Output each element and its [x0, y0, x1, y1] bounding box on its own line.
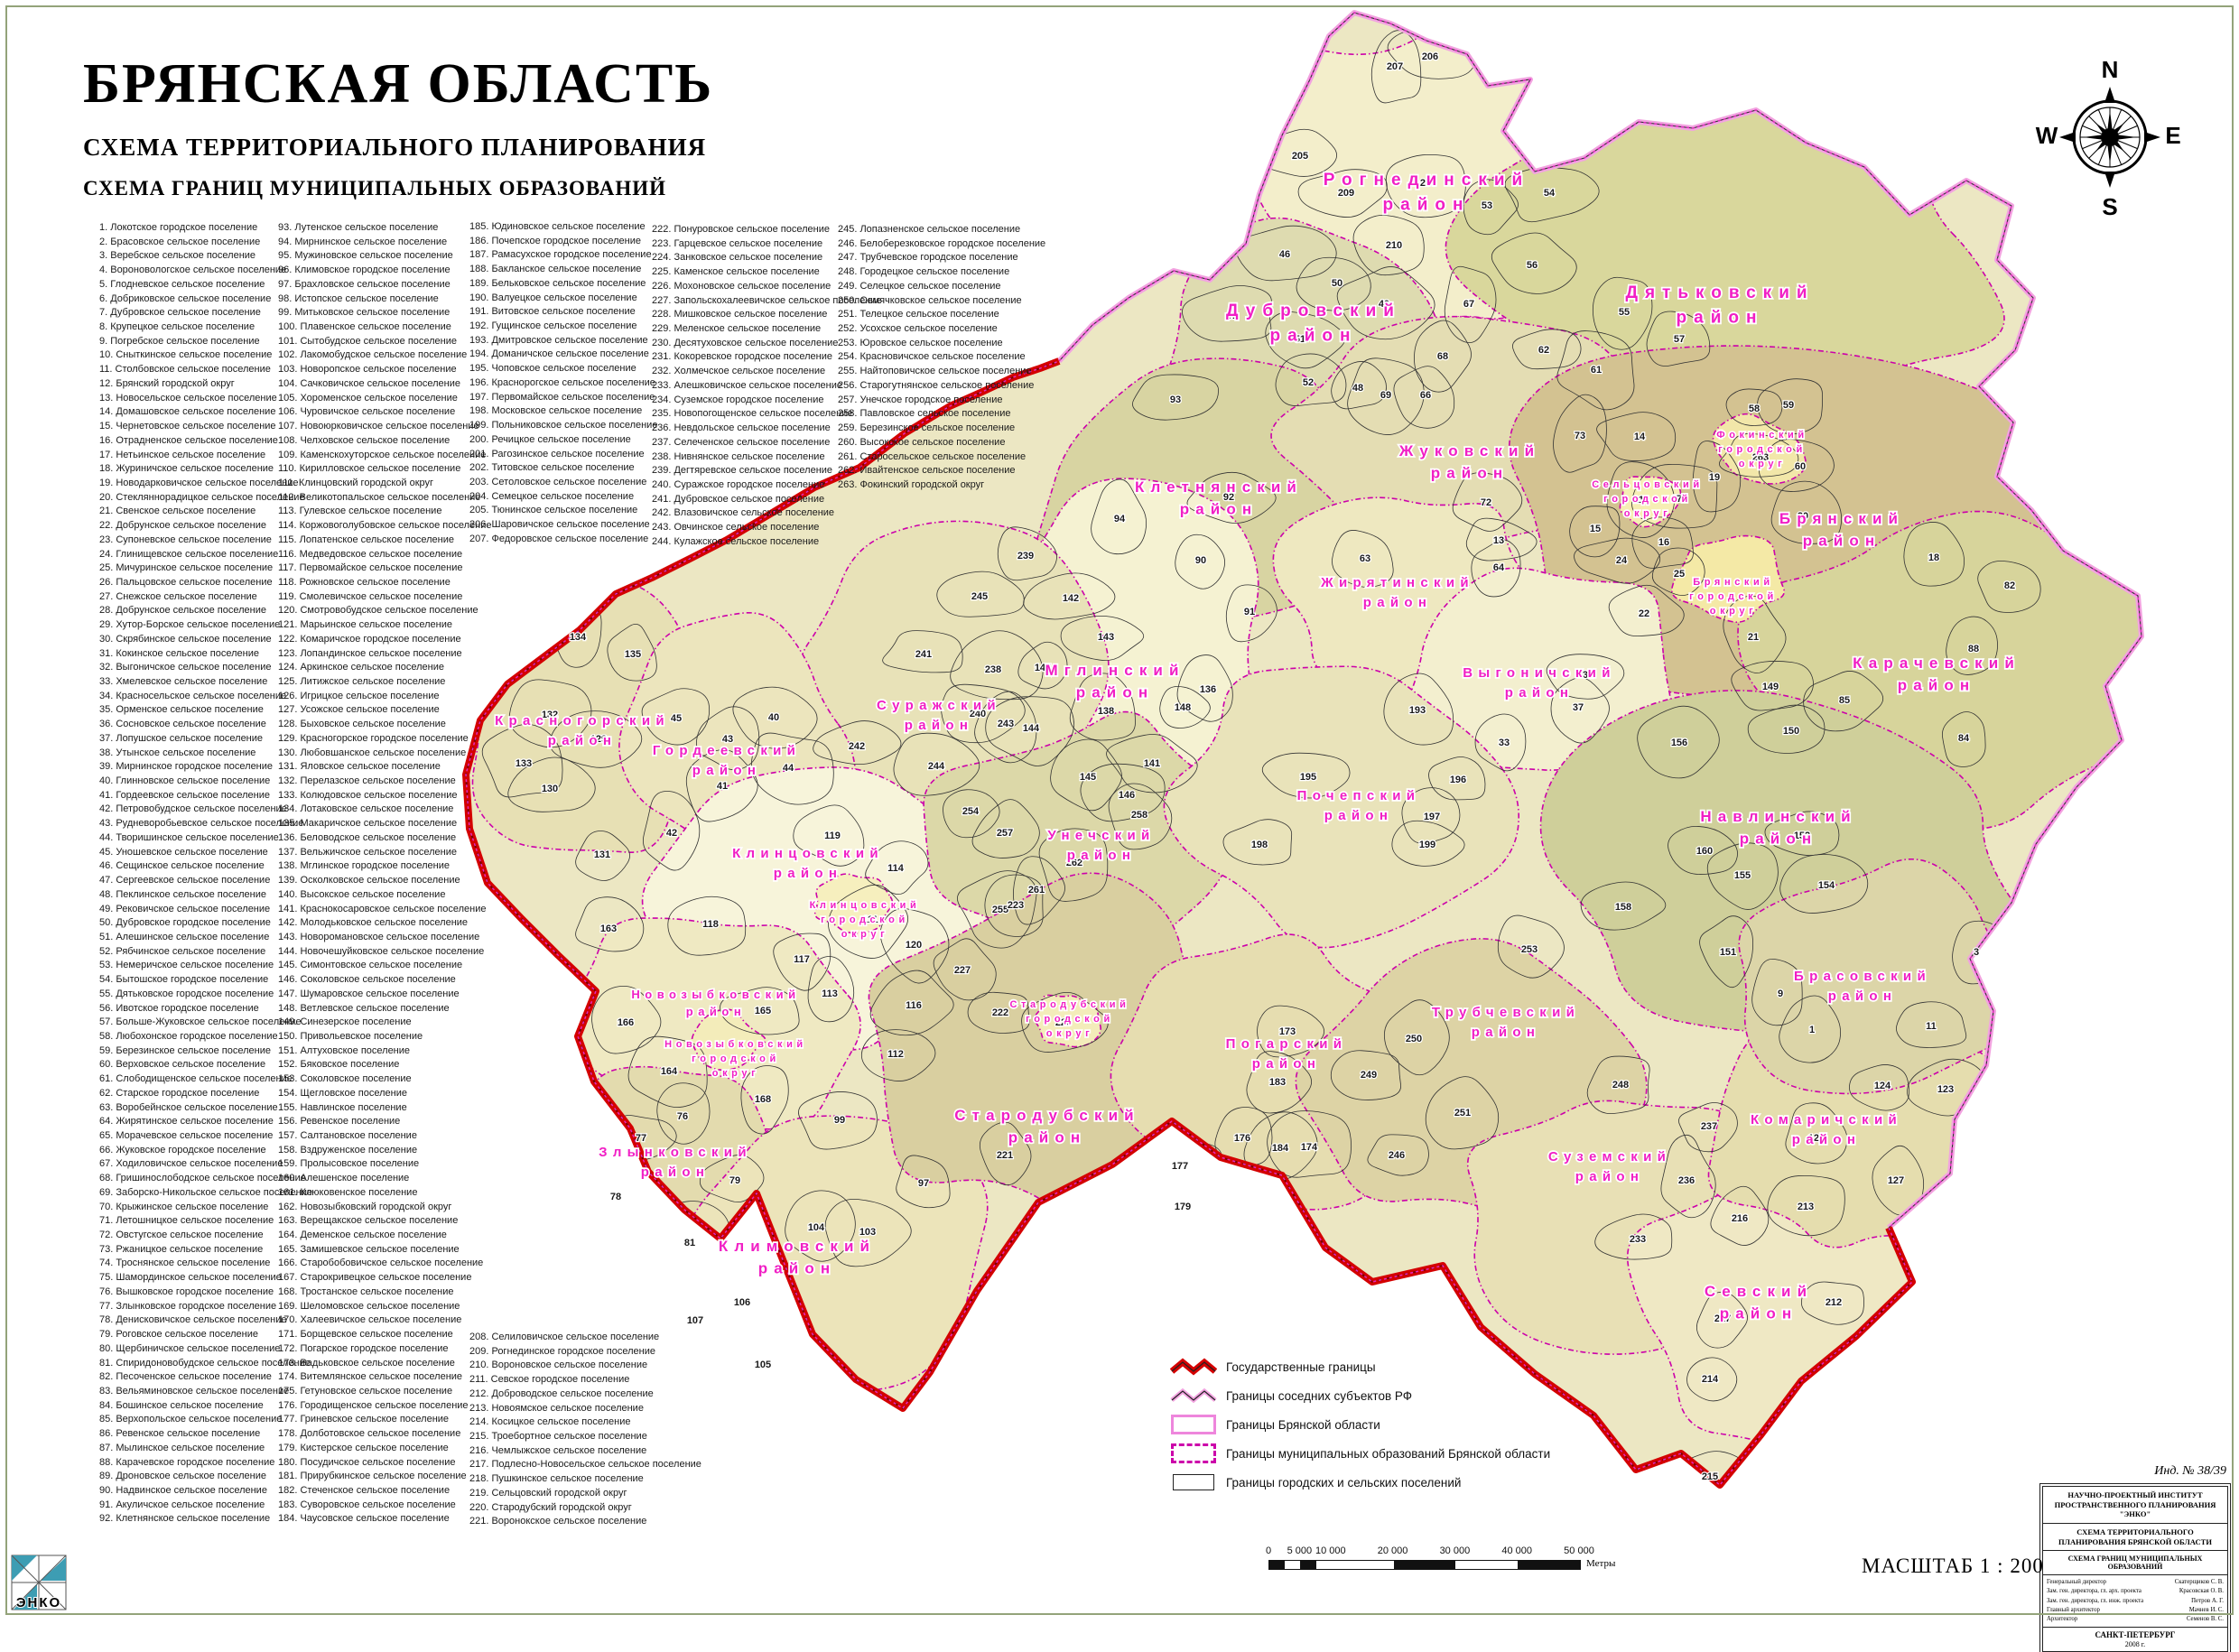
settlement-number: 22 — [1639, 608, 1649, 619]
legend-item: 210. Вороновское сельское поселение — [469, 1359, 701, 1373]
legend-item: 116. Медведовское сельское поселение — [278, 548, 492, 562]
legend-item: 168. Тростанское сельское поселение — [278, 1285, 492, 1300]
legend-item: 243. Овчинское сельское поселение — [652, 521, 882, 535]
title-block-staff-row: Главный архитекторМачнев И. С. — [2047, 1606, 2224, 1615]
legend-item: 98. Истопское сельское поселение — [278, 292, 492, 307]
settlement-number: 67 — [1463, 299, 1474, 310]
neighbor-border-symbol — [1170, 1385, 1217, 1406]
legend-item: 190. Валуецкое сельское поселение — [469, 292, 657, 306]
legend-item: 250. Семячковское сельское поселение — [838, 294, 1045, 309]
settlement-number: 205 — [1292, 151, 1308, 162]
legend-item: 113. Гулевское сельское поселение — [278, 505, 492, 519]
legend-item: 184. Чаусовское сельское поселение — [278, 1512, 492, 1527]
svg-text:S: S — [2102, 193, 2117, 220]
legend-item: 197. Первомайское сельское поселение — [469, 391, 657, 405]
legend-item: 189. Бельковское сельское поселение — [469, 277, 657, 292]
legend-item: 99. Митьковское сельское поселение — [278, 306, 492, 320]
settlement-number: 69 — [1380, 390, 1391, 401]
settlement-number: 58 — [1749, 404, 1760, 414]
legend-item: 130. Любовшанское сельское поселение — [278, 747, 492, 761]
settlement-number: 248 — [1612, 1080, 1629, 1091]
svg-text:E: E — [2165, 122, 2180, 149]
scale-tick-label: 0 — [1266, 1545, 1271, 1556]
settlement-number: 195 — [1300, 772, 1316, 783]
legend-item: 158. Вздруженское поселение — [278, 1144, 492, 1158]
legend-item: 95. Мужиновское сельское поселение — [278, 249, 492, 264]
settlement-number: 94 — [1114, 514, 1126, 524]
settlement-number: 155 — [1734, 870, 1751, 881]
legend-item: 107. Новоюрковичское сельское поселение — [278, 420, 492, 434]
enko-logo: ЭНКО — [11, 1555, 69, 1614]
settlement-number: 81 — [684, 1238, 695, 1248]
settlement-number: 206 — [1422, 51, 1438, 62]
settlement-number: 210 — [1386, 240, 1402, 251]
legend-item: 152. Бяковское поселение — [278, 1058, 492, 1072]
settlement-number: 233 — [1630, 1234, 1646, 1245]
settlement-number: 249 — [1361, 1070, 1377, 1081]
legend-item: 93. Лутенское сельское поселение — [278, 221, 492, 236]
settlement-number: 146 — [1119, 790, 1135, 801]
settlement-number: 246 — [1389, 1150, 1405, 1161]
settlement-number: 11 — [1926, 1021, 1937, 1032]
settlement-number: 261 — [1028, 885, 1045, 896]
legend-item: 188. Бакланское сельское поселение — [469, 263, 657, 277]
settlement-number: 78 — [610, 1192, 621, 1202]
legend-item: 143. Новоромановское сельское поселение — [278, 931, 492, 945]
legend-item: 109. Каменскохуторское сельское поселени… — [278, 449, 492, 463]
settlement-number: 254 — [962, 806, 980, 817]
legend-item: 108. Челховское сельское поселение — [278, 434, 492, 449]
settlement-number: 120 — [906, 940, 922, 951]
settlement-number: 119 — [824, 831, 841, 841]
legend-item: 204. Семецкое сельское поселение — [469, 490, 657, 505]
settlement-number: 145 — [1080, 772, 1096, 783]
settlement-number: 15 — [1590, 524, 1601, 534]
legend-item: 151. Алтуховское поселение — [278, 1044, 492, 1059]
legend-item: 200. Речицкое сельское поселение — [469, 433, 657, 448]
legend-item: 193. Дмитровское сельское поселение — [469, 334, 657, 348]
legend-item: 262. Ивайтенское сельское поселение — [838, 464, 1045, 478]
settlement-number: 104 — [808, 1222, 825, 1233]
settlement-number: 13 — [1493, 535, 1504, 546]
compass-rose-icon: NSWE — [2033, 47, 2187, 227]
settlement-number: 179 — [1175, 1202, 1191, 1212]
settlement-number: 66 — [1420, 390, 1431, 401]
legend-item: 176. Городищенское сельское поселение — [278, 1399, 492, 1414]
legend-item: 97. Брахловское сельское поселение — [278, 278, 492, 292]
legend-item: 191. Витовское сельское поселение — [469, 305, 657, 320]
legend-item: 182. Стеченское сельское поселение — [278, 1484, 492, 1499]
title-block-city: САНКТ-ПЕТЕРБУРГ — [2043, 1628, 2227, 1640]
scale-tick-label: 5 000 — [1287, 1545, 1313, 1556]
legend-item: 159. Пролысовское поселение — [278, 1157, 492, 1172]
settlement-border-symbol — [1170, 1471, 1217, 1493]
settlement-number: 241 — [915, 649, 932, 660]
map-legend-row: Границы муниципальных образований Брянск… — [1170, 1439, 1550, 1468]
settlement-number: 46 — [1279, 249, 1290, 260]
map-legend-label: Границы городских и сельских поселений — [1226, 1476, 1461, 1490]
settlement-number: 62 — [1538, 345, 1549, 356]
legend-item: 145. Симонтовское сельское поселение — [278, 959, 492, 973]
settlement-number: 53 — [1482, 200, 1492, 211]
legend-item: 129. Красногорское городское поселение — [278, 732, 492, 747]
legend-item: 206. Шаровичское сельское поселение — [469, 518, 657, 533]
legend-item: 115. Лопатенское сельское поселение — [278, 534, 492, 548]
settlement-number: 184 — [1272, 1143, 1289, 1154]
legend-item: 177. Гриневское сельское поселение — [278, 1413, 492, 1427]
legend-item: 209. Рогнединское городское поселение — [469, 1345, 701, 1360]
legend-item: 110. Кирилловское сельское поселение — [278, 462, 492, 477]
legend-item: 207. Федоровское сельское поселение — [469, 533, 657, 547]
svg-text:ЭНКО: ЭНКО — [16, 1595, 61, 1610]
settlement-number: 25 — [1674, 569, 1685, 580]
settlement-number: 105 — [755, 1360, 771, 1370]
settlement-number: 168 — [755, 1094, 771, 1105]
settlement-number: 41 — [717, 781, 728, 792]
settlement-number: 68 — [1437, 351, 1448, 362]
settlement-number: 117 — [794, 954, 810, 965]
oblast-border-symbol — [1170, 1414, 1217, 1435]
settlement-number: 14 — [1634, 432, 1646, 442]
settlement-number: 237 — [1701, 1121, 1717, 1132]
legend-item: 135. Макаричское сельское поселение — [278, 817, 492, 831]
legend-item: 126. Игрицкое сельское поселение — [278, 690, 492, 704]
settlement-number: 148 — [1175, 702, 1191, 713]
legend-item: 153. Соколовское поселение — [278, 1072, 492, 1087]
settlement-number: 103 — [859, 1227, 876, 1238]
legend-item: 211. Севское городское поселение — [469, 1373, 701, 1387]
settlement-number: 79 — [729, 1175, 740, 1186]
settlement-number: 44 — [783, 763, 794, 774]
legend-item: 195. Чоповское сельское поселение — [469, 362, 657, 376]
legend-item: 150. Привольевское поселение — [278, 1030, 492, 1044]
settlement-number: 24 — [1616, 555, 1628, 566]
map-legend-row: Границы городских и сельских поселений — [1170, 1468, 1550, 1497]
legend-item: 161. Клюковенское поселение — [278, 1186, 492, 1201]
legend-item: 112. Великотопальское сельское поселение — [278, 491, 492, 506]
settlement-number: 142 — [1063, 593, 1079, 604]
legend-item: 178. Долботовское сельское поселение — [278, 1427, 492, 1442]
legend-item: 175. Гетуновское сельское поселение — [278, 1385, 492, 1399]
settlement-number: 183 — [1269, 1077, 1286, 1088]
legend-item: 199. Польниковское сельское поселение — [469, 419, 657, 433]
state-border-symbol — [1170, 1356, 1217, 1378]
settlement-number: 84 — [1958, 733, 1970, 744]
settlement-number: 199 — [1419, 840, 1435, 850]
legend-item: 258. Павловское сельское поселение — [838, 407, 1045, 422]
settlement-number: 130 — [542, 784, 558, 794]
legend-item: 218. Пушкинское сельское поселение — [469, 1472, 701, 1487]
settlement-number: 255 — [992, 905, 1008, 915]
legend-item: 185. Юдиновское сельское поселение — [469, 220, 657, 235]
settlement-number: 59 — [1783, 400, 1794, 411]
scale-tick-label: 10 000 — [1315, 1545, 1346, 1556]
settlement-number: 123 — [1937, 1084, 1954, 1095]
svg-text:W: W — [2036, 122, 2058, 149]
title-block-staff-row: АрхитекторСеменов В. С. — [2047, 1615, 2224, 1624]
legend-item: 164. Деменское сельское поселение — [278, 1229, 492, 1243]
legend-item: 147. Шумаровское сельское поселение — [278, 988, 492, 1002]
settlement-number: 133 — [516, 758, 532, 769]
legend-item: 186. Почепское городское поселение — [469, 235, 657, 249]
settlement-number: 198 — [1251, 840, 1268, 850]
legend-item: 105. Хороменское сельское поселение — [278, 392, 492, 406]
settlement-number: 56 — [1527, 260, 1538, 271]
settlement-number: 127 — [1888, 1175, 1904, 1186]
legend-item: 172. Погарское городское поселение — [278, 1342, 492, 1357]
title-block-staff-row: Зам. ген. директора, гл. арх. проектаКра… — [2047, 1587, 2224, 1596]
legend-item: 134. Лотаковское сельское поселение — [278, 803, 492, 817]
legend-item: 114. Коржовоголубовское сельское поселен… — [278, 519, 492, 534]
settlement-number: 244 — [928, 761, 945, 772]
page-subtitle-boundaries: СХЕМА ГРАНИЦ МУНИЦИПАЛЬНЫХ ОБРАЗОВАНИЙ — [83, 177, 666, 200]
settlement-number: 88 — [1968, 644, 1979, 654]
legend-item: 246. Белоберезковское городское поселени… — [838, 237, 1045, 252]
legend-item: 106. Чуровичское сельское поселение — [278, 405, 492, 420]
legend-item: 205. Тюнинское сельское поселение — [469, 504, 657, 518]
settlement-number: 52 — [1303, 377, 1314, 388]
legend-item: 139. Осколковское сельское поселение — [278, 874, 492, 888]
settlement-number: 243 — [998, 719, 1014, 729]
settlement-number: 251 — [1454, 1108, 1471, 1118]
legend-item: 122. Комаричское городское поселение — [278, 633, 492, 647]
scale-bar-labels: 05 00010 00020 00030 00040 00050 000 — [1268, 1545, 1593, 1558]
settlement-number: 114 — [887, 863, 905, 874]
settlement-number: 60 — [1795, 461, 1806, 472]
title-block-year: 2008 г. — [2043, 1640, 2227, 1651]
legend-item: 219. Сельцовский городской округ — [469, 1487, 701, 1501]
legend-item: 254. Красновичское сельское поселение — [838, 350, 1045, 365]
legend-item: 261. Старосельское сельское поселение — [838, 450, 1045, 465]
settlement-number: 213 — [1798, 1202, 1814, 1212]
scale-tick-label: 20 000 — [1378, 1545, 1408, 1556]
settlement-number: 141 — [1144, 758, 1160, 769]
settlement-number: 64 — [1493, 562, 1505, 573]
legend-item: 120. Смотровобудское сельское поселение — [278, 604, 492, 618]
settlement-number: 118 — [702, 919, 719, 930]
legend-item: 117. Первомайское сельское поселение — [278, 561, 492, 576]
title-block-staff-row: Зам. ген. директора, гл. инж. проектаПет… — [2047, 1597, 2224, 1606]
legend-item: 245. Лопазненское сельское поселение — [838, 223, 1045, 237]
settlement-number: 212 — [1826, 1297, 1842, 1308]
settlement-number: 21 — [1748, 632, 1759, 643]
title-block-organization: НАУЧНО-ПРОЕКТНЫЙ ИНСТИТУТ ПРОСТРАНСТВЕНН… — [2043, 1487, 2227, 1524]
legend-item: 101. Сытобудское сельское поселение — [278, 335, 492, 349]
legend-item: 102. Лакомобудское сельское поселение — [278, 348, 492, 363]
settlement-number: 227 — [954, 965, 971, 976]
settlement-number: 106 — [734, 1297, 750, 1308]
settlement-number: 55 — [1619, 307, 1630, 318]
legend-item: 94. Мирнинское сельское поселение — [278, 236, 492, 250]
settlement-number: 196 — [1450, 775, 1466, 785]
legend-item: 165. Замишевское сельское поселение — [278, 1243, 492, 1258]
title-block-staff: Генеральный директорСкатерщиков С. В.Зам… — [2043, 1575, 2227, 1628]
legend-item: 194. Доманичское сельское поселение — [469, 348, 657, 362]
settlement-number: 257 — [997, 828, 1013, 839]
legend-list-column: 208. Селиловичское сельское поселение209… — [469, 1331, 701, 1529]
title-block-staff-row: Генеральный директорСкатерщиков С. В. — [2047, 1578, 2224, 1587]
legend-item: 202. Титовское сельское поселение — [469, 461, 657, 476]
legend-item: 248. Городецкое сельское поселение — [838, 265, 1045, 280]
legend-item: 252. Усохское сельское поселение — [838, 322, 1045, 337]
settlement-number: 77 — [636, 1133, 646, 1144]
legend-item: 103. Новоропское сельское поселение — [278, 363, 492, 377]
legend-item: 212. Доброводское сельское поселение — [469, 1387, 701, 1402]
settlement-number: 3 — [1974, 947, 1979, 958]
settlement-number: 242 — [849, 741, 865, 752]
settlement-number: 99 — [834, 1115, 845, 1126]
legend-item: 128. Быховское сельское поселение — [278, 718, 492, 732]
legend-item: 251. Телецкое сельское поселение — [838, 308, 1045, 322]
settlement-number: 253 — [1521, 944, 1538, 955]
settlement-number: 82 — [2004, 580, 2015, 591]
legend-item: 157. Салтановское поселение — [278, 1129, 492, 1144]
scale-bar-graphic — [1268, 1560, 1581, 1570]
settlement-number: 216 — [1732, 1213, 1748, 1224]
settlement-number: 239 — [1017, 551, 1034, 561]
legend-item: 136. Беловодское сельское поселение — [278, 831, 492, 846]
settlement-number: 134 — [570, 632, 587, 643]
legend-item: 187. Рамасухское городское поселение — [469, 248, 657, 263]
settlement-number: 33 — [1499, 738, 1510, 748]
legend-item: 171. Борщевское сельское поселение — [278, 1328, 492, 1342]
legend-list-column: 245. Лопазненское сельское поселение246.… — [838, 223, 1045, 493]
legend-item: 220. Стародубский городской округ — [469, 1501, 701, 1516]
scale-tick-label: 40 000 — [1501, 1545, 1532, 1556]
legend-item: 170. Халеевичское сельское поселение — [278, 1313, 492, 1328]
legend-item: 181. Прирубкинское сельское поселение — [278, 1470, 492, 1484]
legend-item: 201. Рагозинское сельское поселение — [469, 448, 657, 462]
settlement-number: 54 — [1544, 188, 1556, 199]
settlement-number: 150 — [1783, 726, 1799, 737]
settlement-number: 61 — [1591, 365, 1602, 376]
settlement-number: 18 — [1928, 552, 1939, 563]
legend-item: 138. Мглинское городское поселение — [278, 859, 492, 874]
legend-item: 160. Алешенское поселение — [278, 1172, 492, 1186]
settlement-number: 138 — [1098, 706, 1114, 717]
legend-item: 156. Ревенское поселение — [278, 1115, 492, 1129]
settlement-number: 16 — [1658, 537, 1669, 548]
legend-item: 183. Суворовское сельское поселение — [278, 1499, 492, 1513]
settlement-number: 160 — [1696, 846, 1713, 857]
legend-item: 119. Смолевичское сельское поселение — [278, 590, 492, 605]
map-legend-row: Границы Брянской области — [1170, 1410, 1550, 1439]
legend-item: 142. Молодьковское сельское поселение — [278, 916, 492, 931]
legend-item: 111. Клинцовский городской округ — [278, 477, 492, 491]
legend-item: 163. Верещакское сельское поселение — [278, 1214, 492, 1229]
settlement-number: 164 — [661, 1066, 678, 1077]
settlement-number: 163 — [600, 923, 617, 934]
page-title: БРЯНСКАЯ ОБЛАСТЬ — [83, 52, 713, 116]
settlement-number: 63 — [1360, 553, 1370, 564]
legend-item: 253. Юровское сельское поселение — [838, 337, 1045, 351]
settlement-number: 207 — [1387, 61, 1403, 72]
settlement-number: 197 — [1424, 812, 1440, 822]
legend-item: 127. Усожское сельское поселение — [278, 703, 492, 718]
legend-list-column: 185. Юдиновское сельское поселение186. П… — [469, 220, 657, 547]
map-legend-row: Границы соседних субъектов РФ — [1170, 1381, 1550, 1410]
title-block-project: СХЕМА ТЕРРИТОРИАЛЬНОГО ПЛАНИРОВАНИЯ БРЯН… — [2043, 1524, 2227, 1551]
legend-item: 169. Шеломовское сельское поселение — [278, 1300, 492, 1314]
municipal-border-symbol — [1170, 1443, 1217, 1464]
settlement-number: 156 — [1671, 738, 1687, 748]
settlement-number: 158 — [1615, 902, 1631, 913]
settlement-number: 214 — [1702, 1374, 1719, 1385]
legend-item: 179. Кистерское сельское поселение — [278, 1442, 492, 1456]
page: { "page":{ "title":"БРЯНСКАЯ ОБЛАСТЬ", "… — [0, 0, 2239, 1620]
settlement-number: 72 — [1481, 497, 1491, 508]
settlement-number: 177 — [1172, 1161, 1188, 1172]
legend-item: 96. Климовское городское поселение — [278, 264, 492, 278]
legend-item: 242. Влазовичское сельское поселение — [652, 506, 882, 521]
settlement-number: 236 — [1678, 1175, 1695, 1186]
document-number: Инд. № 38/39 — [2104, 1464, 2226, 1479]
legend-item: 173. Вадьковское сельское поселение — [278, 1357, 492, 1371]
settlement-number: 222 — [992, 1007, 1008, 1018]
settlement-number: 76 — [677, 1111, 688, 1122]
title-block-sheet: СХЕМА ГРАНИЦ МУНИЦИПАЛЬНЫХ ОБРАЗОВАНИЙ — [2043, 1551, 2227, 1575]
settlement-number: 57 — [1674, 334, 1685, 345]
legend-item: 198. Московское сельское поселение — [469, 404, 657, 419]
scale-bar-unit: Метры — [1586, 1558, 1615, 1569]
settlement-number: 174 — [1301, 1142, 1318, 1153]
legend-item: 216. Чемлыжское сельское поселение — [469, 1444, 701, 1459]
legend-item: 133. Колюдовское сельское поселение — [278, 789, 492, 803]
map-legend-label: Границы муниципальных образований Брянск… — [1226, 1447, 1550, 1461]
settlement-number: 250 — [1406, 1034, 1422, 1044]
settlement-number: 97 — [918, 1178, 929, 1189]
scale-bar: 05 00010 00020 00030 00040 00050 000 Мет… — [1268, 1545, 1593, 1570]
legend-item: 257. Унечское городское поселение — [838, 394, 1045, 408]
settlement-number: 151 — [1720, 947, 1736, 958]
legend-item: 132. Перелазское сельское поселение — [278, 775, 492, 789]
settlement-number: 85 — [1839, 695, 1850, 706]
legend-item: 155. Навлинское поселение — [278, 1101, 492, 1116]
legend-item: 137. Вельжичское сельское поселение — [278, 846, 492, 860]
map-legend-label: Границы соседних субъектов РФ — [1226, 1389, 1412, 1403]
legend-item: 260. Высокское сельское поселение — [838, 436, 1045, 450]
legend-item: 123. Лопандинское сельское поселение — [278, 647, 492, 662]
scale-tick-label: 30 000 — [1440, 1545, 1471, 1556]
settlement-number: 91 — [1244, 607, 1255, 617]
legend-item: 221. Воронокское сельское поселение — [469, 1515, 701, 1529]
settlement-number: 90 — [1195, 555, 1206, 566]
settlement-number: 149 — [1762, 682, 1779, 692]
settlement-number: 19 — [1709, 472, 1720, 483]
settlement-number: 258 — [1131, 810, 1147, 821]
settlement-number: 50 — [1332, 278, 1342, 289]
map-legend-label: Государственные границы — [1226, 1360, 1376, 1374]
legend-item: 166. Старобобовичское сельское поселение — [278, 1257, 492, 1271]
legend-item: 259. Березинское сельское поселение — [838, 422, 1045, 436]
settlement-number: 48 — [1352, 383, 1363, 394]
settlement-number: 154 — [1818, 880, 1835, 891]
settlement-number: 223 — [1008, 900, 1024, 911]
legend-item: 196. Краснорогское сельское поселение — [469, 376, 657, 391]
settlement-number: 135 — [625, 649, 641, 660]
title-block: НАУЧНО-ПРОЕКТНЫЙ ИНСТИТУТ ПРОСТРАНСТВЕНН… — [2042, 1486, 2228, 1652]
legend-item: 217. Подлесно-Новосельское сельское посе… — [469, 1458, 701, 1472]
settlement-number: 221 — [997, 1150, 1013, 1161]
legend-item: 125. Литижское сельское поселение — [278, 675, 492, 690]
legend-list-column: 93. Лутенское сельское поселение94. Мирн… — [278, 221, 492, 1527]
legend-item: 263. Фокинский городской округ — [838, 478, 1045, 493]
settlement-number: 116 — [906, 1000, 922, 1011]
legend-item: 203. Сетоловское сельское поселение — [469, 476, 657, 490]
legend-item: 149. Синезерское поселение — [278, 1016, 492, 1030]
map-legend-label: Границы Брянской области — [1226, 1418, 1380, 1432]
map-legend-row: Государственные границы — [1170, 1352, 1550, 1381]
